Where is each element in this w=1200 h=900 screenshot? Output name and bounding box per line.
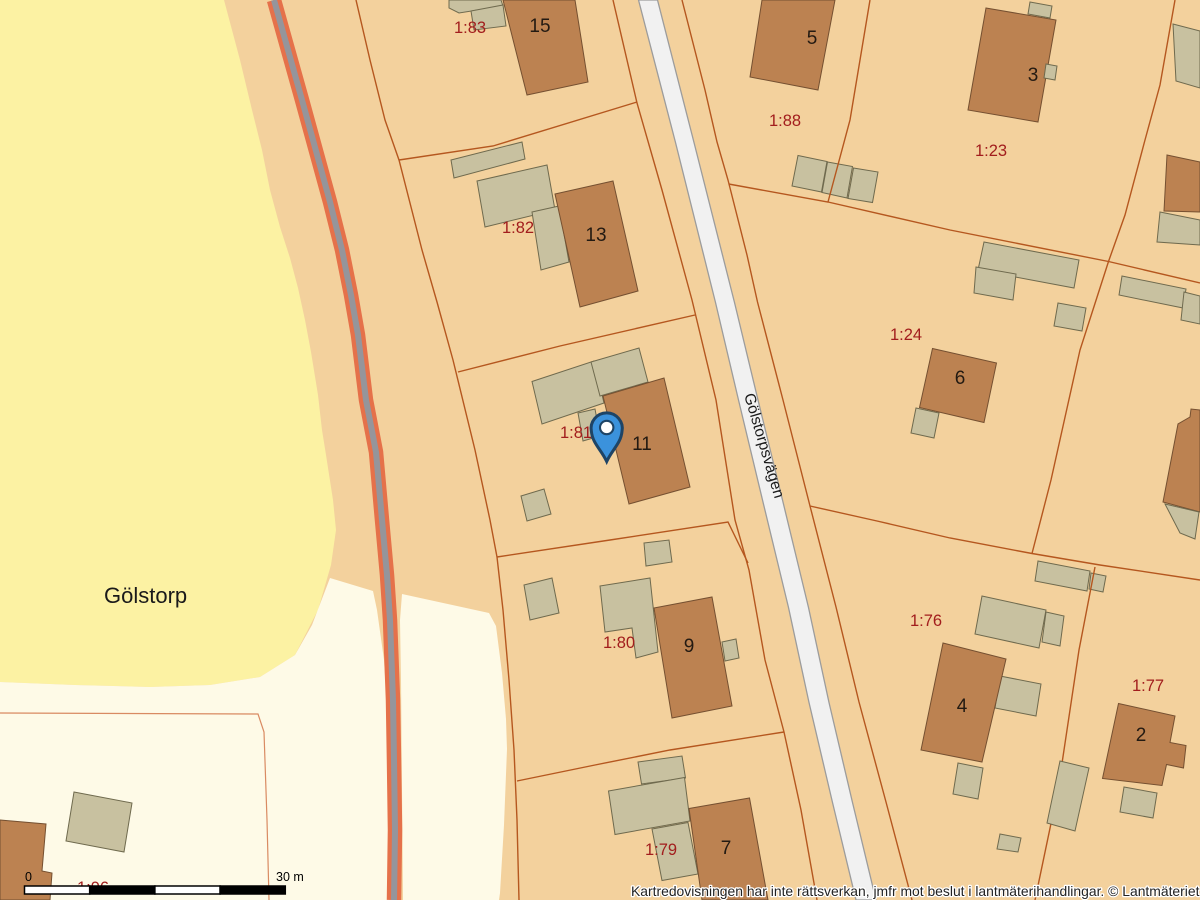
svg-text:1:77: 1:77 xyxy=(1132,677,1164,695)
svg-text:1:24: 1:24 xyxy=(890,326,922,344)
svg-text:7: 7 xyxy=(721,838,732,859)
svg-text:1:81: 1:81 xyxy=(560,424,592,442)
svg-text:9: 9 xyxy=(684,636,695,657)
svg-text:1:79: 1:79 xyxy=(645,841,677,859)
svg-text:13: 13 xyxy=(585,225,606,246)
svg-text:1:80: 1:80 xyxy=(603,634,635,652)
svg-text:Kartredovisningen har inte rät: Kartredovisningen har inte rättsverkan, … xyxy=(631,883,1200,899)
svg-text:1:83: 1:83 xyxy=(454,19,486,37)
svg-text:1:88: 1:88 xyxy=(769,112,801,130)
svg-text:4: 4 xyxy=(957,696,968,717)
svg-text:3: 3 xyxy=(1028,65,1039,86)
svg-text:15: 15 xyxy=(529,16,550,37)
svg-text:1:23: 1:23 xyxy=(975,142,1007,160)
svg-text:Gölstorp: Gölstorp xyxy=(104,583,187,608)
svg-text:0: 0 xyxy=(25,870,32,884)
svg-text:1:76: 1:76 xyxy=(910,612,942,630)
svg-text:6: 6 xyxy=(955,368,966,389)
svg-text:1:82: 1:82 xyxy=(502,219,534,237)
svg-text:2: 2 xyxy=(1136,725,1147,746)
svg-text:11: 11 xyxy=(632,434,652,455)
svg-text:5: 5 xyxy=(807,28,818,49)
svg-text:30 m: 30 m xyxy=(276,870,304,884)
